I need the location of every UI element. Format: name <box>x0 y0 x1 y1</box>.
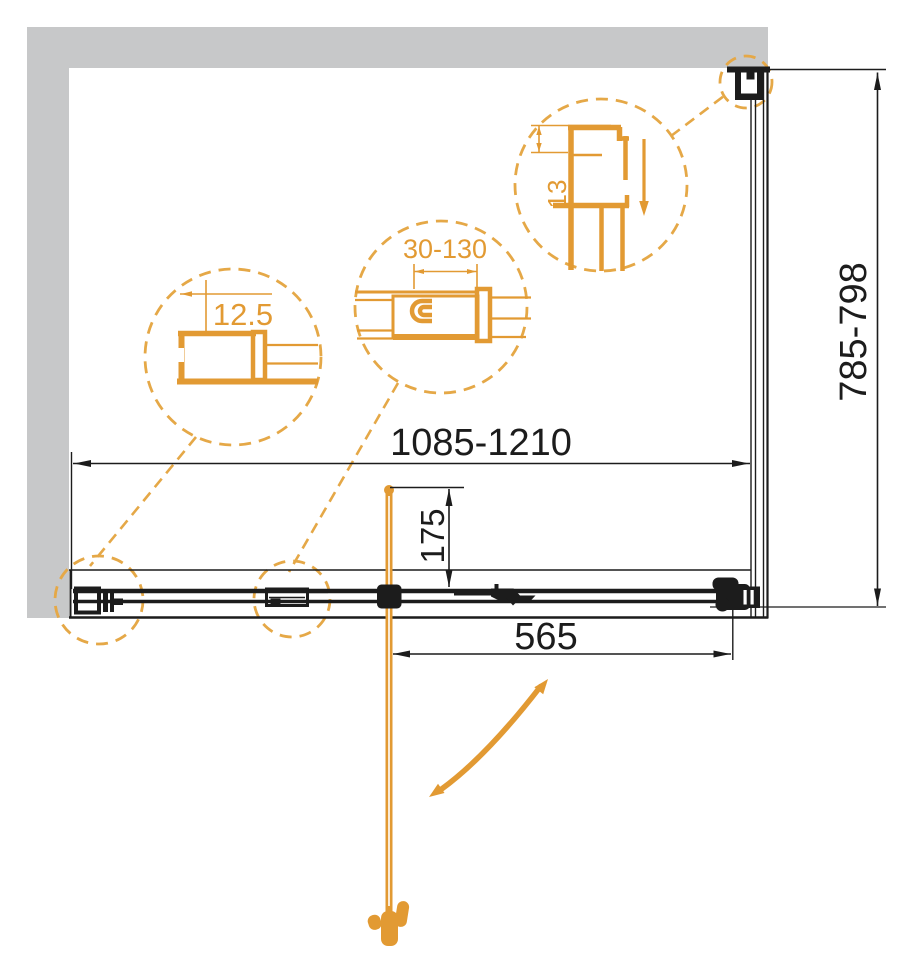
leader-wall-profile <box>90 437 196 566</box>
wall <box>27 27 768 618</box>
arrow-left-icon <box>181 291 192 296</box>
arrow-right-icon <box>714 651 731 658</box>
door-handle-block <box>377 585 402 609</box>
door-width-label: 565 <box>514 616 577 658</box>
dimension-width: 1085-1210 <box>72 422 751 589</box>
detail-adjustment-profile: 30-130 <box>355 234 531 341</box>
width-range-label: 1085-1210 <box>390 422 572 464</box>
handle-bar <box>366 485 410 946</box>
adjustment-range-label: 30-130 <box>403 234 487 264</box>
arrow-left-icon <box>393 651 410 658</box>
wall-top <box>27 27 768 68</box>
dimension-depth: 785-798 <box>710 70 886 608</box>
door-swing-arrow <box>429 679 548 797</box>
wall-left <box>27 27 69 618</box>
detail-corner-profile: 13 <box>531 125 649 271</box>
arrow-left-icon <box>74 460 91 467</box>
door-rail <box>69 570 768 618</box>
arrow-up-icon <box>874 73 881 90</box>
handle-bar-cap <box>384 485 394 495</box>
glass-direction-arrow-icon <box>639 201 649 216</box>
depth-range-label: 785-798 <box>833 262 875 401</box>
leader-adjustment-profile <box>289 383 398 572</box>
leader-corner-profile <box>671 96 724 136</box>
side-panel <box>727 67 770 619</box>
dimension-handle-offset: 175 <box>390 488 464 588</box>
arrow-down-icon <box>446 570 453 587</box>
arrow-right-icon <box>732 460 749 467</box>
technical-drawing-canvas: 12.5 30-130 13 <box>0 0 908 970</box>
detail-circle-wall-profile <box>145 269 321 445</box>
arrow-up-icon <box>446 489 453 506</box>
rail-hardware <box>377 578 760 612</box>
arrow-down-icon <box>874 589 881 606</box>
shower-enclosure-drawing: 12.5 30-130 13 <box>0 0 908 970</box>
handle-offset-label: 175 <box>414 508 451 563</box>
wall-profile-width-label: 12.5 <box>213 297 273 332</box>
